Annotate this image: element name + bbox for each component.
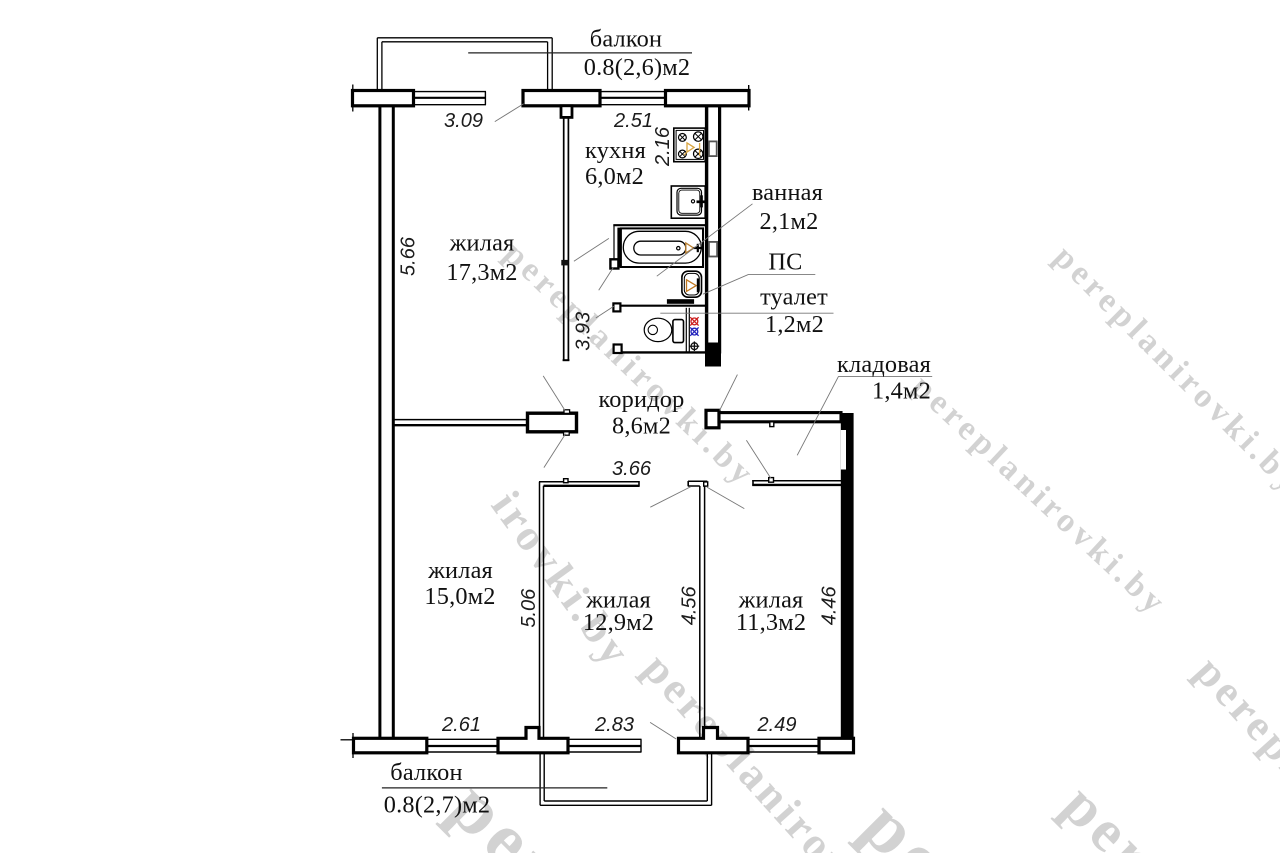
svg-text:2,1м2: 2,1м2: [760, 208, 819, 235]
svg-text:2.83: 2.83: [594, 714, 634, 736]
svg-text:2.16: 2.16: [652, 126, 674, 167]
svg-text:ПС: ПС: [768, 249, 802, 276]
svg-text:12,9м2: 12,9м2: [583, 609, 654, 636]
svg-text:6,0м2: 6,0м2: [585, 163, 644, 190]
svg-text:5.06: 5.06: [518, 588, 540, 628]
svg-text:0.8(2,6)м2: 0.8(2,6)м2: [584, 54, 690, 81]
svg-text:2.61: 2.61: [441, 714, 481, 736]
svg-text:1,4м2: 1,4м2: [872, 378, 931, 405]
svg-text:15,0м2: 15,0м2: [424, 583, 495, 610]
svg-text:2.49: 2.49: [757, 714, 797, 736]
svg-text:1,2м2: 1,2м2: [765, 311, 824, 338]
svg-text:балкон: балкон: [590, 25, 662, 52]
svg-text:туалет: туалет: [760, 284, 828, 311]
svg-text:4.46: 4.46: [819, 585, 841, 625]
svg-text:5.66: 5.66: [398, 236, 420, 276]
svg-text:8,6м2: 8,6м2: [612, 413, 671, 440]
svg-text:17,3м2: 17,3м2: [446, 259, 517, 286]
svg-text:жилая: жилая: [427, 557, 493, 584]
svg-text:жилая: жилая: [449, 230, 515, 257]
svg-text:3.93: 3.93: [573, 312, 595, 351]
svg-text:ванная: ванная: [752, 179, 823, 206]
svg-text:балкон: балкон: [390, 759, 462, 786]
svg-text:11,3м2: 11,3м2: [736, 609, 806, 636]
svg-text:2.51: 2.51: [613, 110, 653, 132]
svg-text:коридор: коридор: [599, 386, 685, 413]
svg-text:кладовая: кладовая: [837, 351, 931, 378]
svg-text:кухня: кухня: [585, 137, 646, 164]
svg-text:0.8(2,7)м2: 0.8(2,7)м2: [384, 792, 490, 819]
svg-text:3.66: 3.66: [612, 458, 652, 480]
svg-text:4.56: 4.56: [679, 585, 701, 625]
svg-text:3.09: 3.09: [444, 110, 483, 132]
